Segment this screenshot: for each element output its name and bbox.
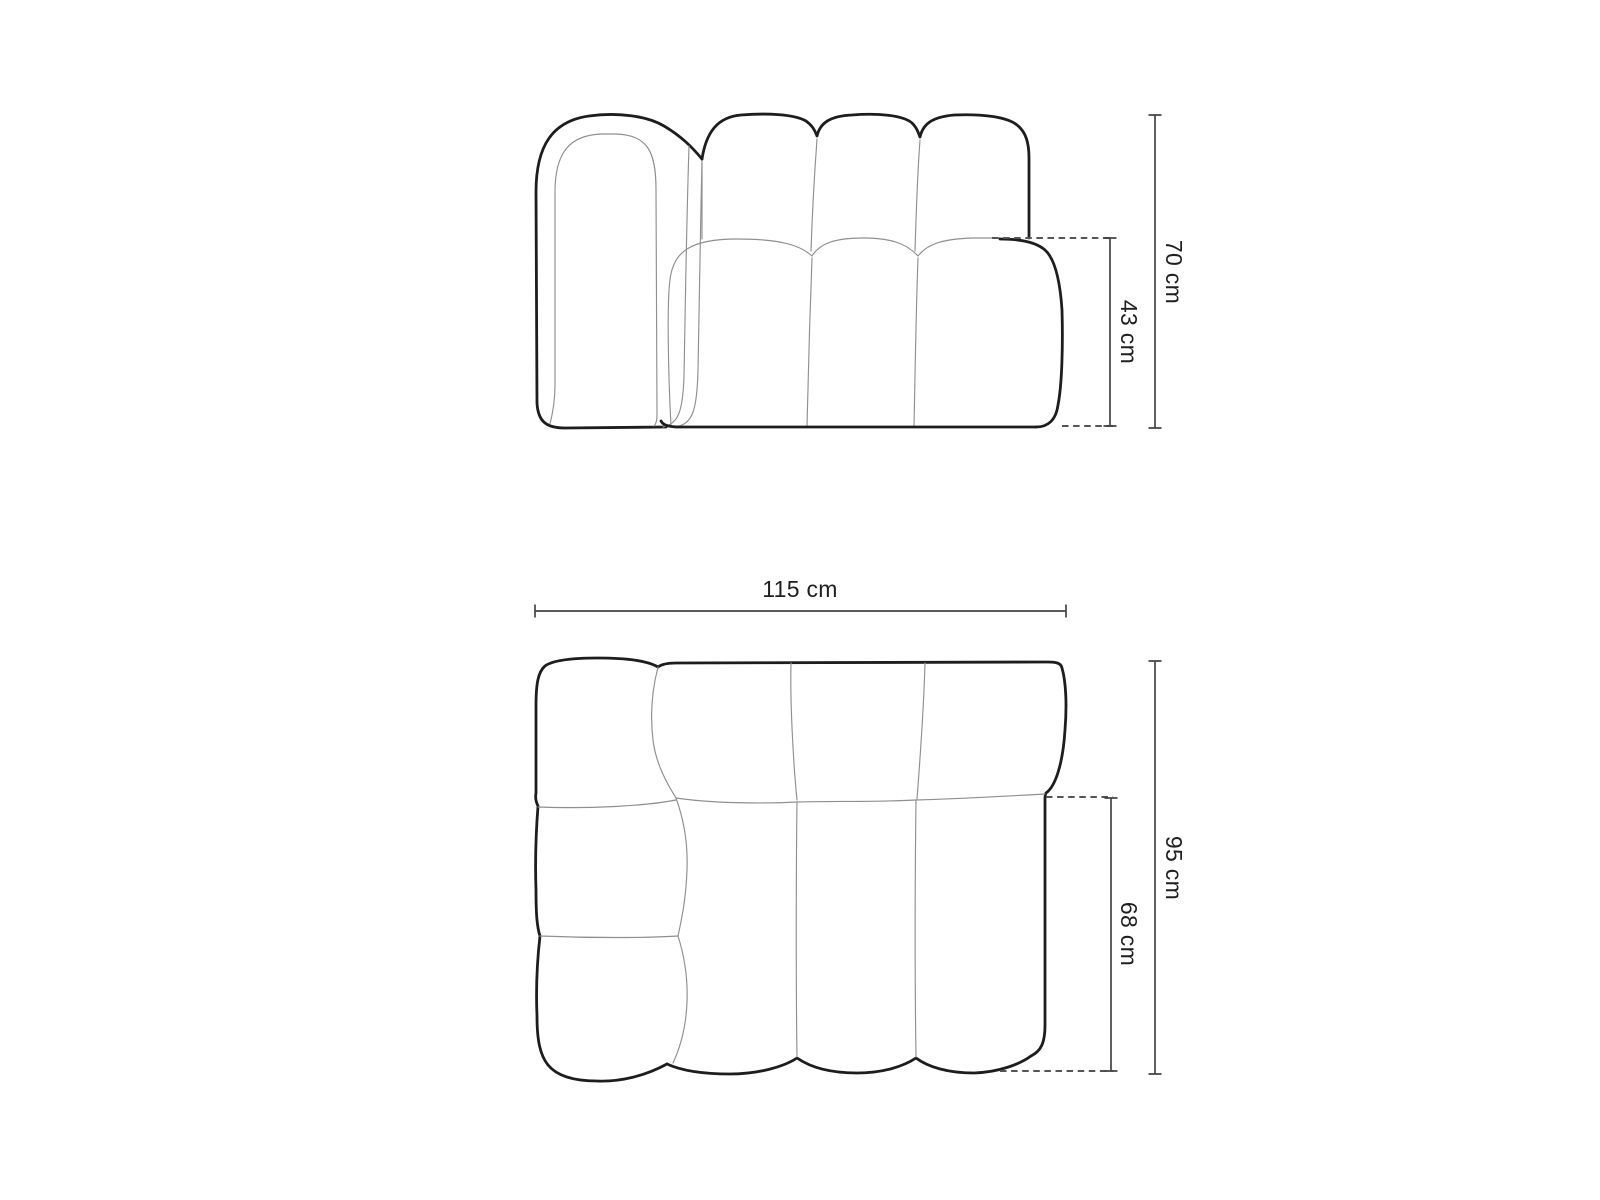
plan-armrest-seams: [538, 800, 678, 938]
sofa-dimension-diagram: 70 cm 43 cm 115: [0, 0, 1600, 1200]
diagram-page: 70 cm 43 cm 115: [0, 0, 1600, 1200]
plan-bottom-cushions-outline: [667, 1056, 1031, 1074]
plan-armrest-column-outline: [536, 658, 667, 1081]
front-total-height-label: 70 cm: [1161, 240, 1187, 304]
front-seat-bubbles-arcs: [668, 238, 1000, 426]
front-armrest-silhouette: [536, 114, 702, 428]
front-total-height-dimension-line: [1149, 115, 1162, 428]
plan-total-depth-label: 95 cm: [1161, 836, 1187, 900]
front-seat-seams: [807, 258, 918, 426]
plan-seat-depth-label: 68 cm: [1116, 902, 1142, 966]
plan-total-depth-dimension-line: [1149, 661, 1162, 1074]
top-view-drawing: 115 cm 95 cm 68 cm: [535, 576, 1187, 1081]
front-seat-height-label: 43 cm: [1116, 300, 1142, 364]
plan-seat-depth-dimension-line: [1105, 798, 1118, 1071]
plan-back-cushion-seams: [791, 663, 925, 800]
plan-armrest-right-edge-seam: [652, 667, 688, 1063]
plan-total-width-label: 115 cm: [762, 576, 838, 602]
front-backrest-seams: [702, 139, 920, 251]
plan-main-outline: [658, 662, 1066, 1056]
plan-seat-cushion-seams: [796, 800, 916, 1057]
front-view-drawing: 70 cm 43 cm: [536, 114, 1187, 428]
front-seat-height-dimension-line: [1104, 238, 1117, 426]
front-armrest-inner-arch: [550, 134, 657, 426]
front-base-line: [661, 421, 1036, 427]
front-backrest-bubbles-outline: [702, 114, 1029, 238]
plan-total-width-dimension-line: [535, 605, 1066, 618]
plan-back-seat-crevice-seam: [676, 794, 1045, 803]
front-seat-right-outline: [1000, 239, 1062, 427]
